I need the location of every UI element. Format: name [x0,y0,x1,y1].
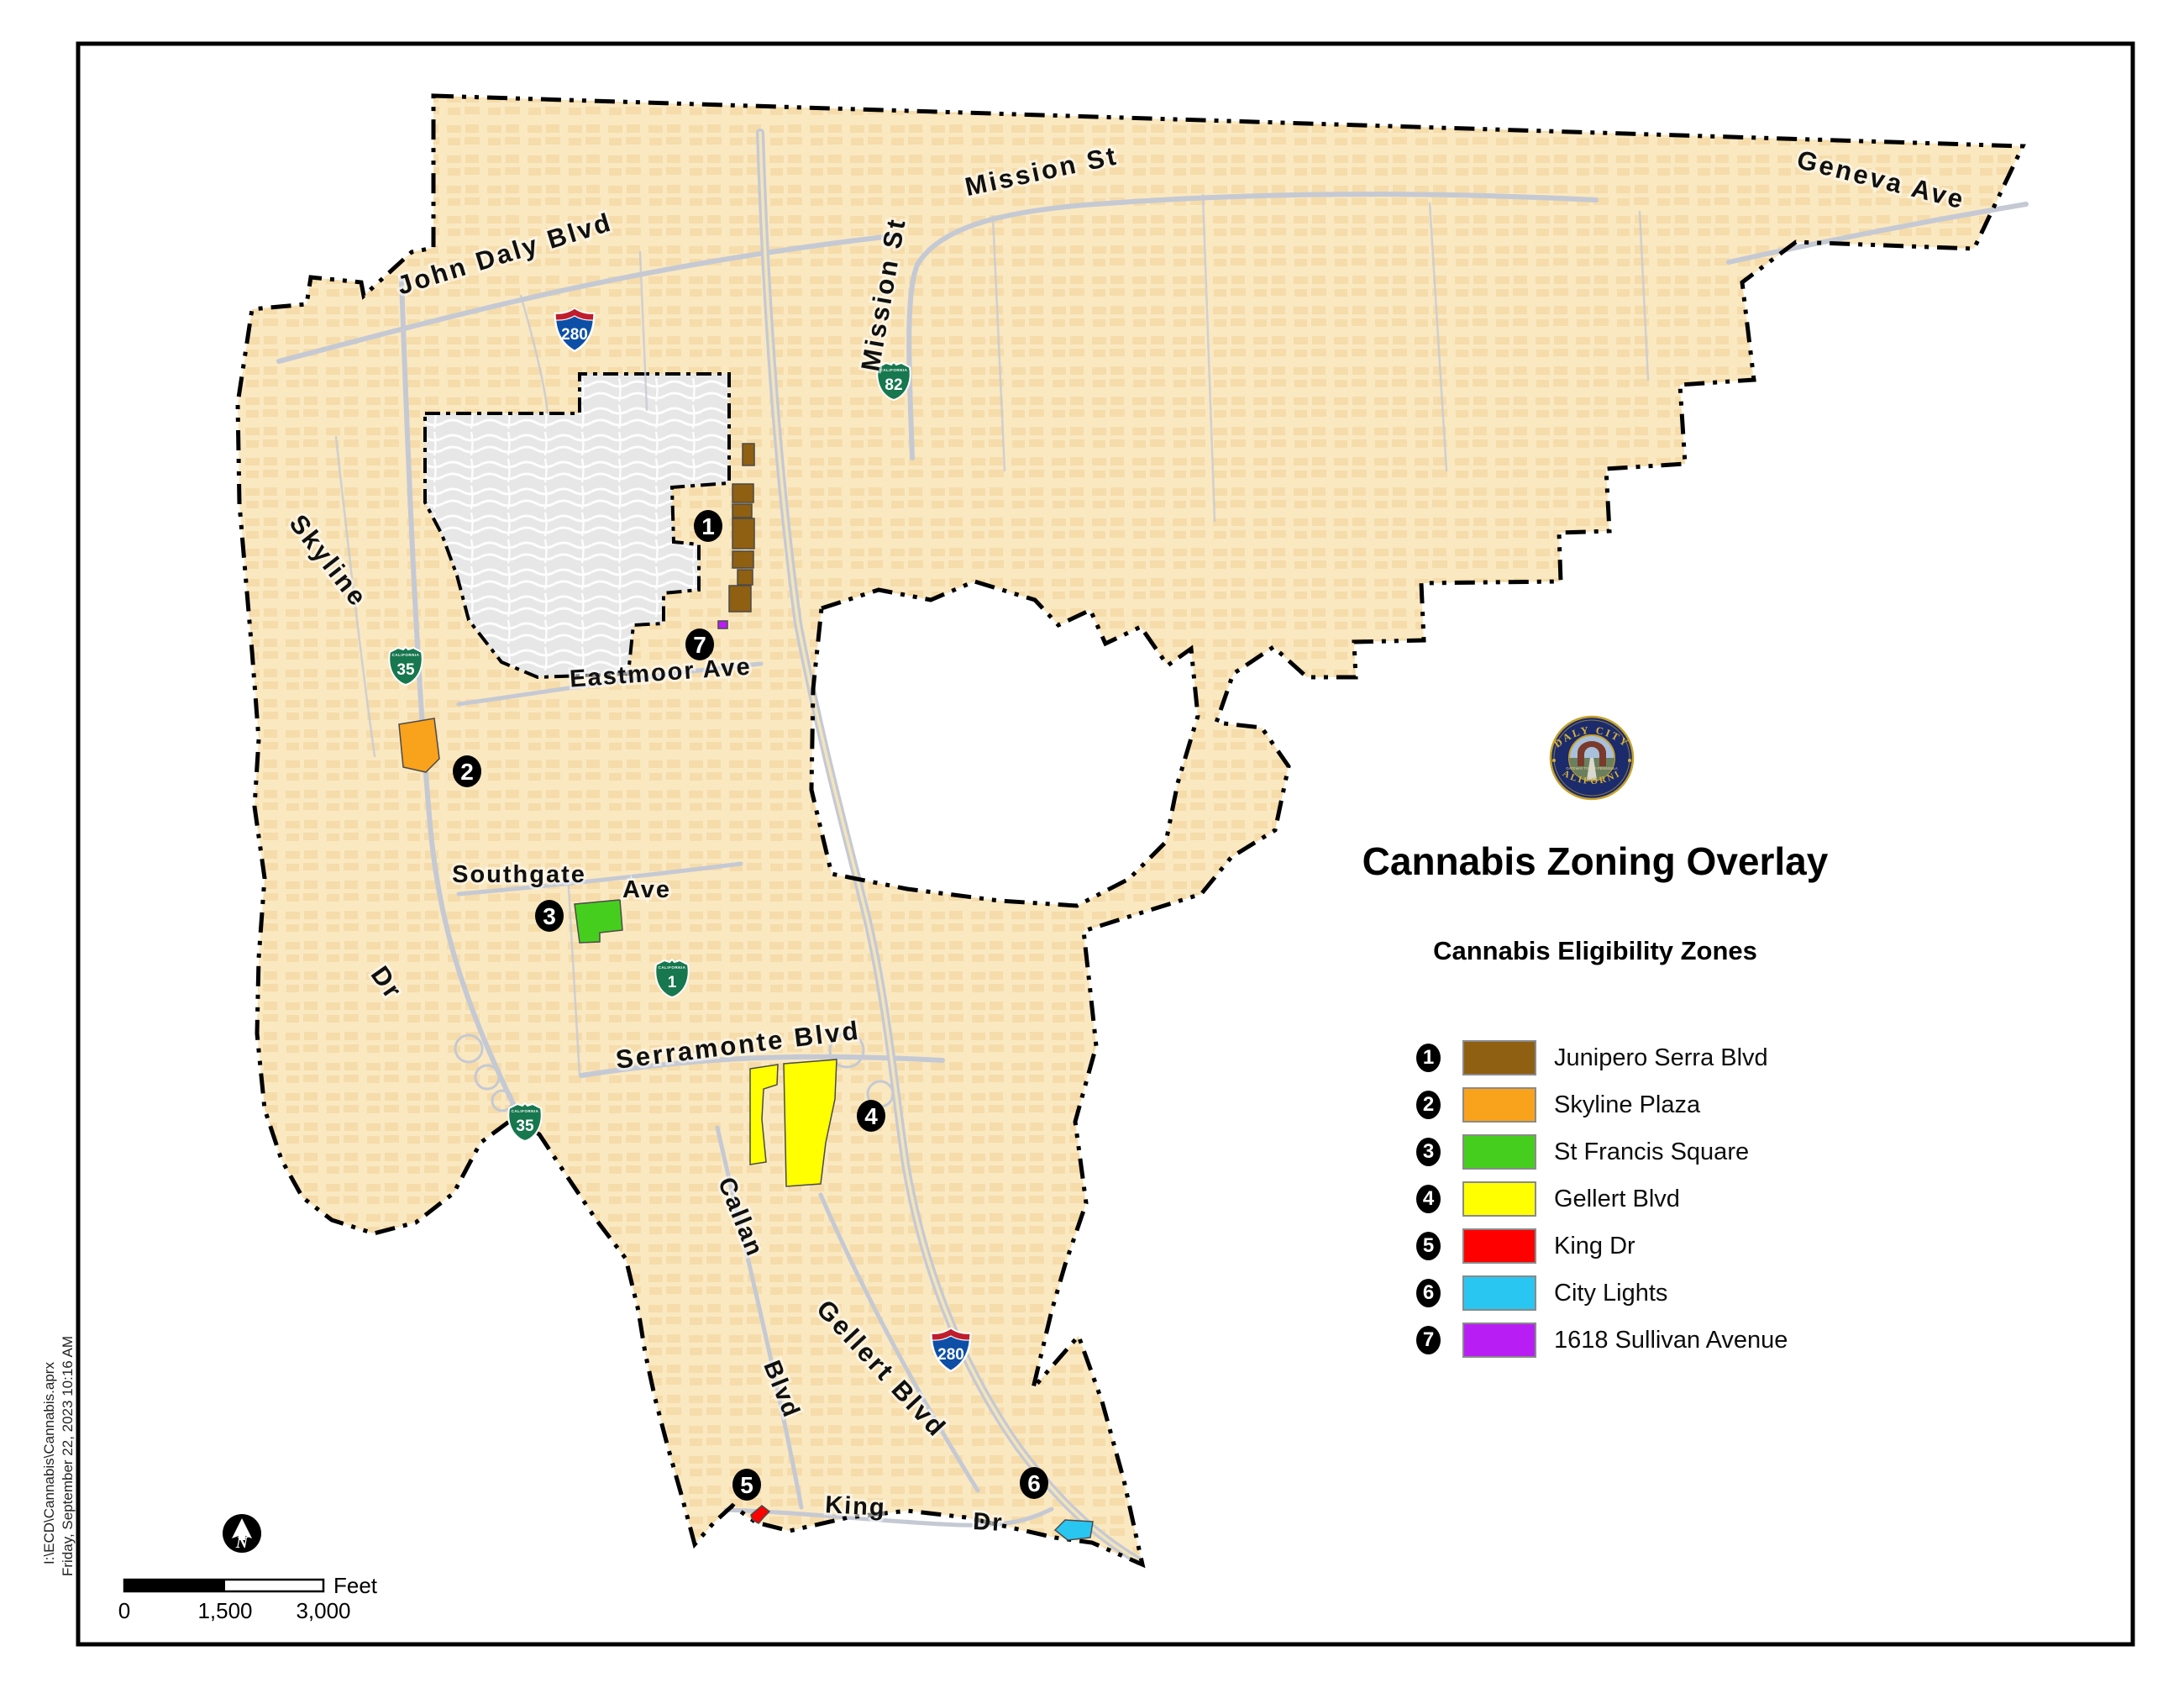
svg-text:6: 6 [1027,1470,1041,1496]
label-king-dr: Dr [973,1508,1005,1537]
svg-text:3: 3 [543,903,556,929]
legend-swatch [1462,1181,1536,1217]
legend-label: St Francis Square [1554,1138,1749,1166]
svg-text:1: 1 [668,974,677,991]
svg-text:CALIFORNIA: CALIFORNIA [512,1109,539,1113]
svg-text:5: 5 [740,1472,753,1498]
legend-swatch [1462,1323,1536,1358]
legend-title: Cannabis Eligibility Zones [1343,936,1847,966]
zone-7-sullivan-ave [718,621,727,628]
legend-number-badge: 4 [1416,1185,1441,1213]
legend-item-junipero-serra: 1 Junipero Serra Blvd [1416,1039,1768,1076]
seal-motto: GATEWAY TO THE PENINSULA [1566,766,1617,770]
label-king: King [824,1491,886,1522]
scale-tick-0: 0 [118,1598,130,1623]
svg-text:4: 4 [864,1103,878,1129]
svg-text:7: 7 [693,632,706,658]
label-southgate: Southgate [452,861,586,888]
legend-label: King Dr [1554,1233,1635,1260]
map-document-page: 280 280 CALIFORNIA 35 CALIFORNIA 35 CALI… [0,0,2184,1688]
legend-item-city-lights: 6 City Lights [1416,1275,1667,1312]
legend-swatch [1462,1087,1536,1123]
scale-tick-1500: 1,500 [197,1598,252,1623]
legend-swatch [1462,1275,1536,1311]
legend-number-badge: 7 [1416,1326,1441,1354]
svg-text:280: 280 [561,326,588,344]
legend-number-badge: 1 [1416,1044,1441,1072]
svg-text:35: 35 [396,661,415,679]
legend-item-king-dr: 5 King Dr [1416,1228,1635,1265]
svg-text:280: 280 [937,1346,964,1364]
zone-marker-3: 3 [535,900,564,932]
legend-label: Skyline Plaza [1554,1091,1700,1119]
zone-2-skyline-plaza [399,718,439,772]
svg-text:35: 35 [516,1117,534,1135]
legend-number-badge: 3 [1416,1138,1441,1166]
legend-label: 1618 Sullivan Avenue [1554,1327,1788,1354]
scale-unit: Feet [333,1573,378,1598]
zone-marker-5: 5 [732,1469,761,1501]
legend-number-badge: 6 [1416,1279,1441,1307]
page-title: Cannabis Zoning Overlay [1343,839,1847,884]
legend-swatch [1462,1040,1536,1075]
legend-label: City Lights [1554,1280,1667,1307]
zone-marker-6: 6 [1020,1467,1048,1499]
legend-label: Gellert Blvd [1554,1186,1680,1213]
zone-marker-4: 4 [857,1100,885,1132]
scale-bar: Feet 0 1,500 3,000 [118,1573,378,1623]
legend-number-badge: 5 [1416,1232,1441,1260]
legend-item-st-francis-square: 3 St Francis Square [1416,1133,1749,1170]
footer-datetime: Friday, September 22, 2023 10:16 AM [60,1336,76,1576]
north-arrow: N [223,1514,261,1553]
zone-marker-2: 2 [453,755,481,787]
footer-file-path: I:\ECD\Cannabis\Cannabis.aprx [41,1362,57,1564]
legend-swatch [1462,1228,1536,1264]
map-canvas: 280 280 CALIFORNIA 35 CALIFORNIA 35 CALI… [0,0,2184,1688]
zone-marker-1: 1 [694,510,722,542]
svg-text:82: 82 [885,376,902,394]
legend-item-gellert-blvd: 4 Gellert Blvd [1416,1181,1680,1217]
north-label: N [235,1533,249,1552]
svg-text:1: 1 [701,513,715,539]
legend-item-sullivan-avenue: 7 1618 Sullivan Avenue [1416,1322,1788,1359]
shield-ca35-south: CALIFORNIA 35 [508,1103,541,1141]
svg-text:CALIFORNIA: CALIFORNIA [659,965,686,970]
legend-number-badge: 2 [1416,1091,1441,1119]
legend-item-skyline-plaza: 2 Skyline Plaza [1416,1086,1700,1123]
svg-text:2: 2 [460,759,474,785]
legend-label: Junipero Serra Blvd [1554,1044,1768,1072]
label-southgate-ave: Ave [622,876,671,903]
legend-swatch [1462,1134,1536,1170]
svg-text:CALIFORNIA: CALIFORNIA [392,653,420,657]
scale-tick-3000: 3,000 [296,1598,350,1623]
